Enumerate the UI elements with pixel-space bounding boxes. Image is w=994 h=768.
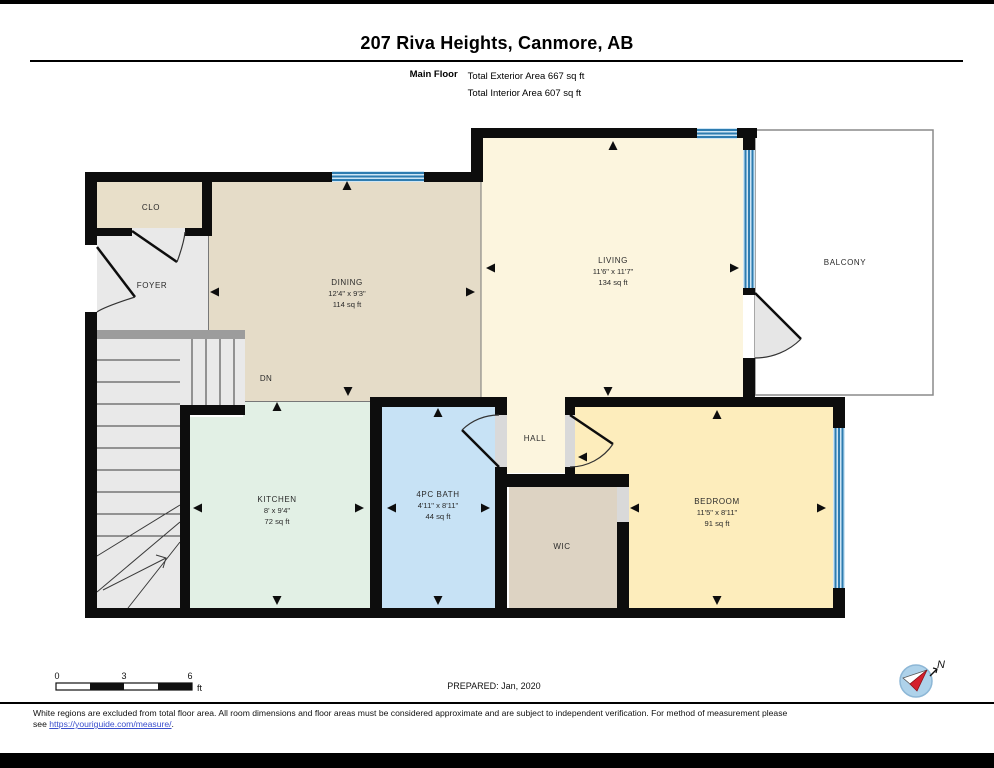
- living-label: LIVING: [598, 256, 628, 265]
- kitchen-dims: 8' x 9'4": [264, 506, 291, 515]
- bedroom-dims: 11'5" x 8'11": [697, 508, 738, 517]
- bath-dims: 4'11" x 8'11": [418, 501, 459, 510]
- bedroom-label: BEDROOM: [694, 497, 740, 506]
- bath-area: 44 sq ft: [426, 512, 452, 521]
- room-foyer: [97, 228, 208, 332]
- dining-area: 114 sq ft: [333, 300, 362, 309]
- stairs-dn-label: DN: [260, 374, 272, 383]
- dining-label: DINING: [331, 278, 363, 287]
- kitchen-label: KITCHEN: [257, 495, 296, 504]
- disclaimer: White regions are excluded from total fl…: [33, 708, 963, 730]
- stairwell-lower: [97, 405, 190, 608]
- room-kitchen: [190, 402, 370, 608]
- living-side-window: [743, 150, 755, 288]
- living-area: 134 sq ft: [598, 278, 628, 287]
- disclaimer-line2-prefix: see: [33, 719, 49, 729]
- bath-label: 4PC BATH: [416, 490, 459, 499]
- scale-bar: 0 3 6 ft: [54, 671, 202, 693]
- bedroom-area: 91 sq ft: [705, 519, 731, 528]
- scale-tick-0: 0: [54, 671, 59, 681]
- stairwell-upper: [97, 339, 245, 405]
- foyer-label: FOYER: [137, 281, 168, 290]
- living-dims: 11'6" x 11'7": [593, 267, 634, 276]
- stair-landing-bar: [97, 330, 245, 339]
- disclaimer-line2-suffix: .: [172, 719, 174, 729]
- room-fills: [97, 130, 933, 608]
- bedroom-window: [833, 428, 845, 588]
- scale-tick-3: 3: [121, 671, 126, 681]
- floor-plan-drawing: DN: [0, 0, 994, 700]
- compass-icon: N: [900, 659, 945, 697]
- dining-window: [332, 171, 424, 182]
- clo-label: CLO: [142, 203, 160, 212]
- floor-plan-page: 207 Riva Heights, Canmore, AB Main Floor…: [0, 0, 994, 768]
- disclaimer-line1: White regions are excluded from total fl…: [33, 708, 787, 718]
- scale-tick-6: 6: [187, 671, 192, 681]
- measure-method-link[interactable]: https://youriguide.com/measure/: [49, 719, 171, 729]
- wic-label: WIC: [553, 542, 570, 551]
- dining-dims: 12'4" x 9'3": [328, 289, 366, 298]
- living-top-window: [697, 128, 737, 139]
- balcony-label: BALCONY: [824, 258, 866, 267]
- kitchen-area: 72 sq ft: [265, 517, 291, 526]
- hall-label: HALL: [524, 434, 546, 443]
- prepared-date: PREPARED: Jan, 2020: [447, 681, 540, 691]
- scale-unit: ft: [197, 683, 203, 693]
- bottom-border-bar: [0, 753, 994, 768]
- footer-divider: [0, 702, 994, 704]
- compass-north-label: N: [937, 659, 945, 671]
